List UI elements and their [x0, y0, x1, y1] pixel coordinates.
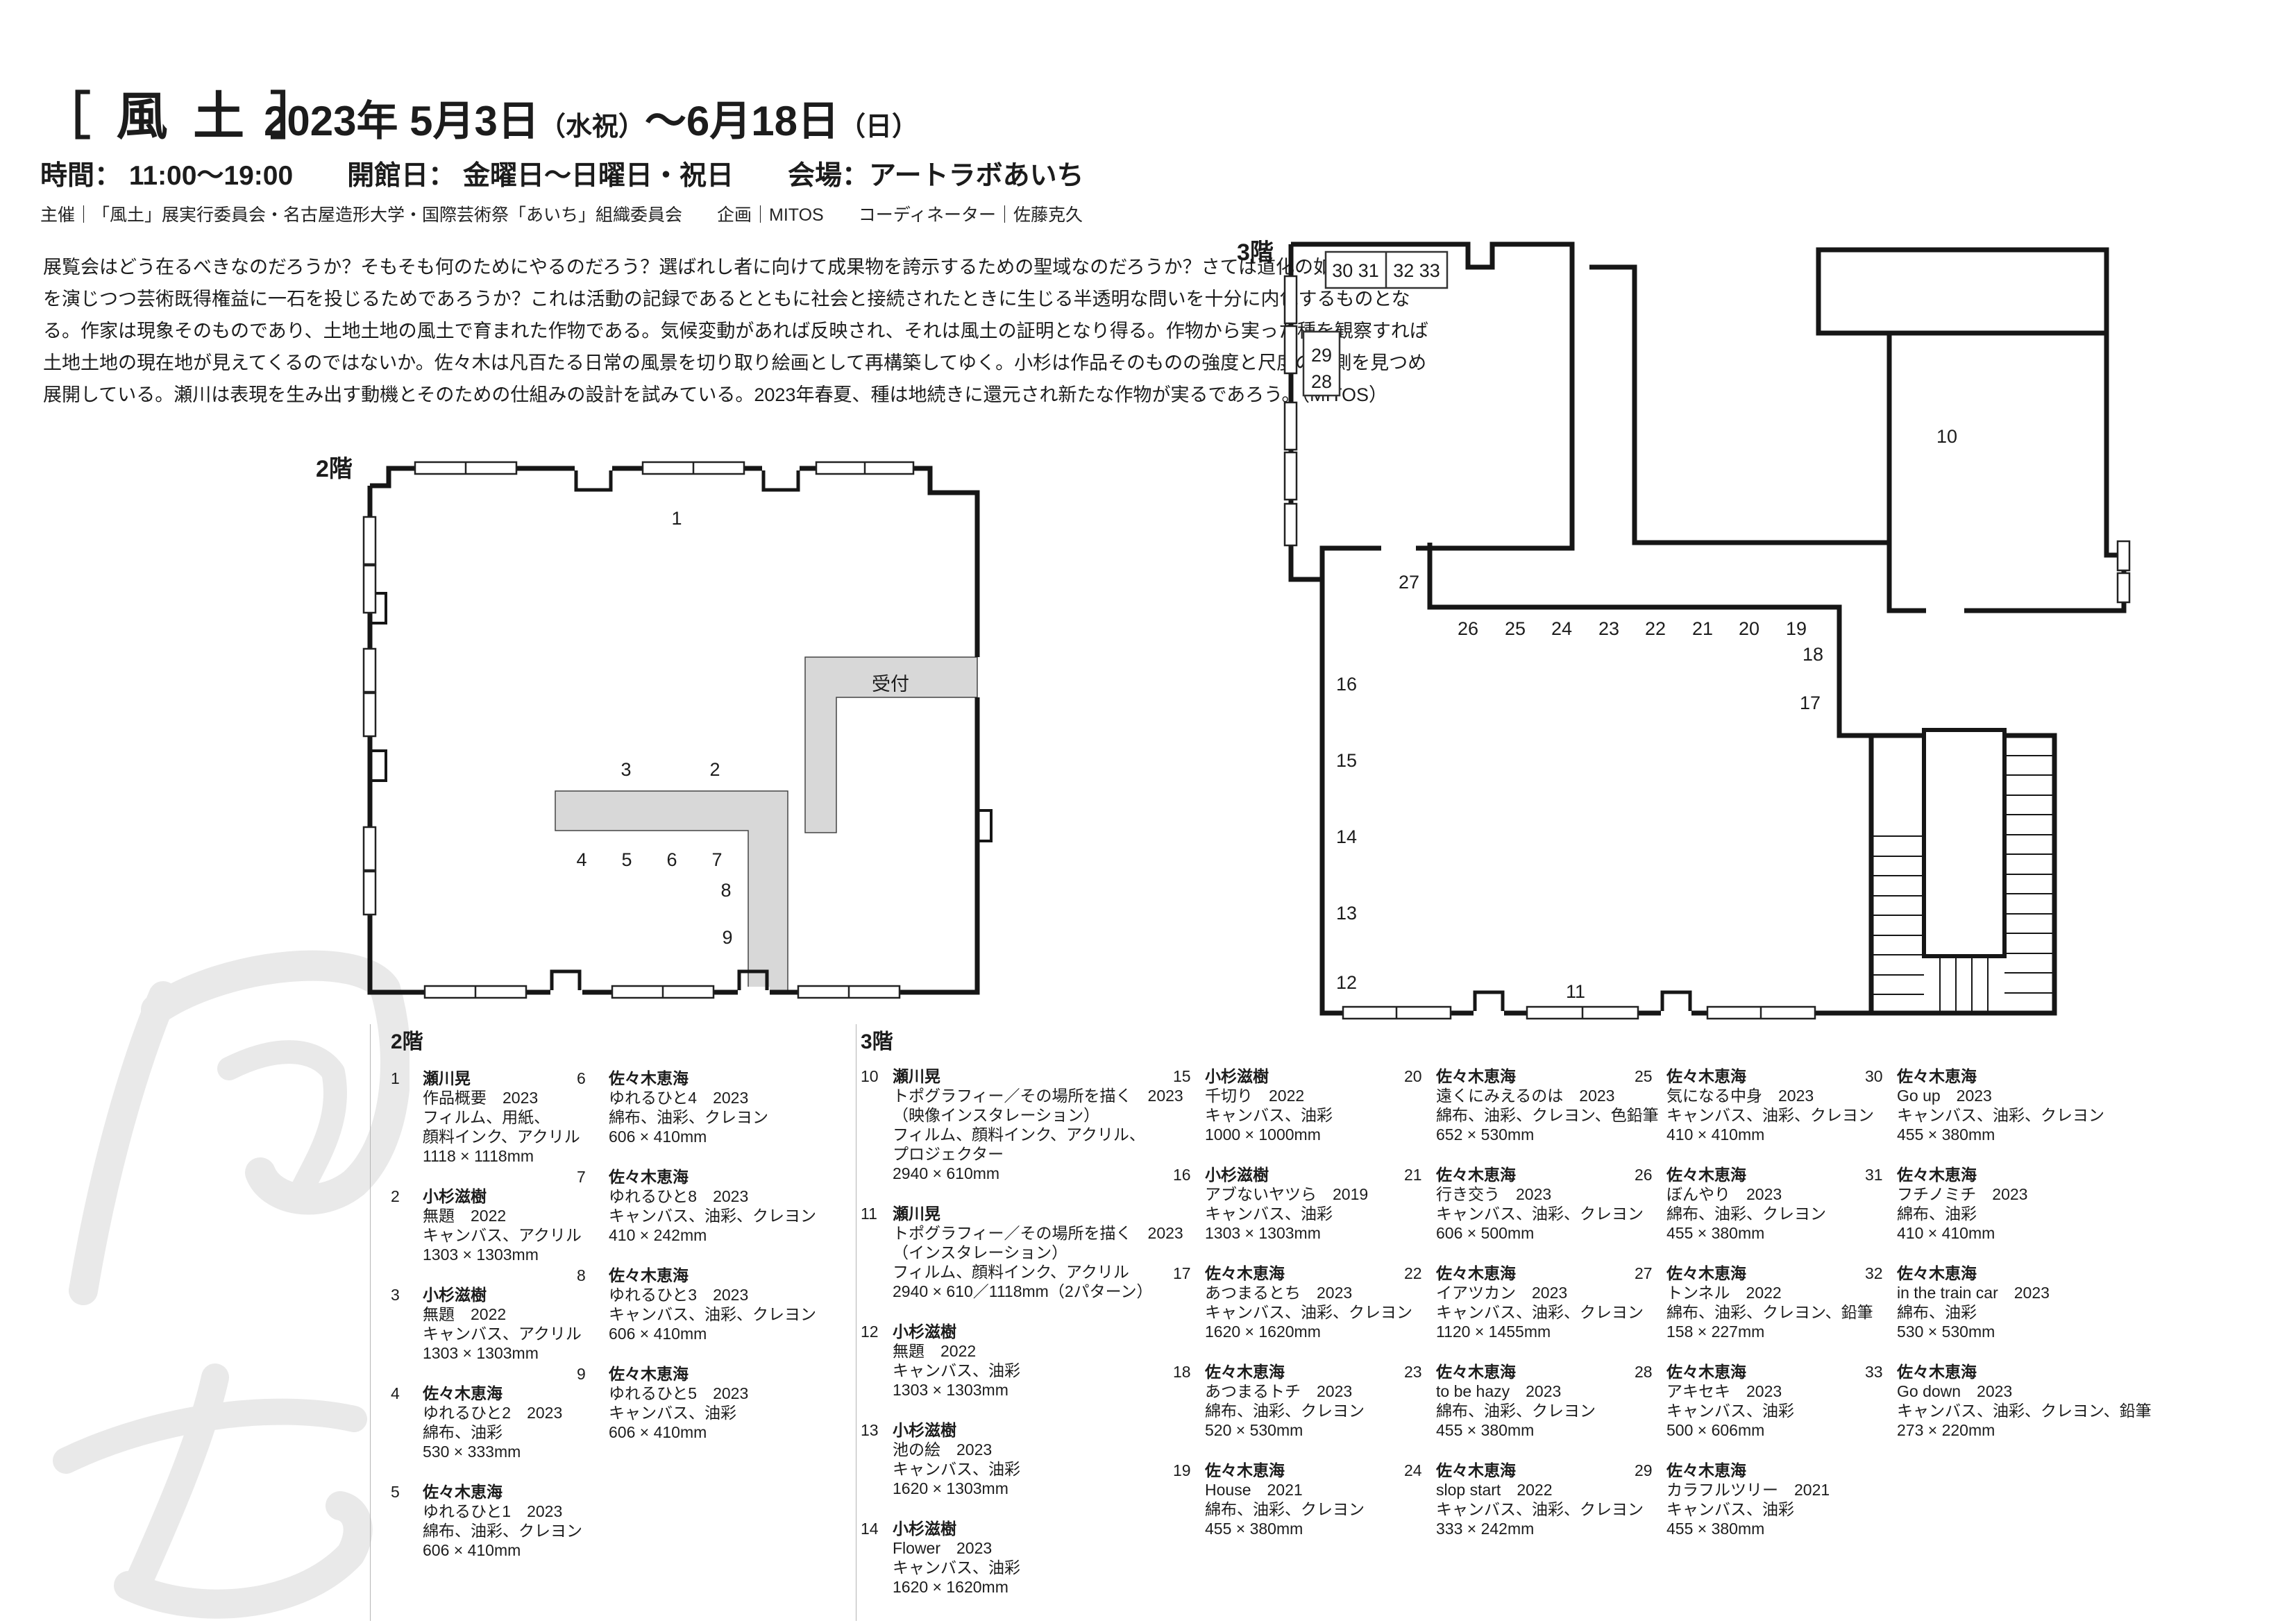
- item-artist: 瀬川晃: [893, 1067, 1183, 1086]
- list-item: 6佐々木恵海ゆれるひと4 2023綿布、油彩、クレヨン606 × 410mm: [577, 1069, 816, 1146]
- list-item: 26佐々木恵海ぼんやり 2023綿布、油彩、クレヨン455 × 380mm: [1635, 1165, 1874, 1243]
- item-number: 19: [1173, 1461, 1191, 1480]
- item-line: 606 × 410mm: [423, 1540, 582, 1560]
- list-item: 24佐々木恵海slop start 2022キャンバス、油彩、クレヨン333 ×…: [1404, 1461, 1659, 1538]
- item-line: 1620 × 1620mm: [893, 1577, 1183, 1597]
- hours-venue-line: 時間： 11:00～19:00 開館日： 金曜日～日曜日・祝日 会場：アートラボ…: [40, 154, 1084, 193]
- watermark-calligraphy: [21, 923, 410, 1623]
- item-artist: 小杉滋樹: [893, 1519, 1183, 1538]
- item-line: 綿布、油彩、クレヨン: [609, 1107, 816, 1127]
- date-start-note: （水祝）: [539, 105, 645, 143]
- item-artist: 佐々木恵海: [423, 1384, 582, 1403]
- list-item: 5佐々木恵海ゆれるひと1 2023綿布、油彩、クレヨン606 × 410mm: [391, 1482, 582, 1560]
- item-body: 佐々木恵海あつまるトチ 2023綿布、油彩、クレヨン520 × 530mm: [1205, 1362, 1412, 1440]
- stairs: [1871, 730, 2054, 1013]
- item-artist: 佐々木恵海: [1436, 1362, 1659, 1382]
- item-artist: 佐々木恵海: [1897, 1264, 2152, 1283]
- item-body: 瀬川晃トポグラフィー／その場所を描く 2023（インスタレーション）フィルム、顔…: [893, 1204, 1183, 1301]
- plan-number-11: 11: [1566, 981, 1585, 1002]
- item-line: ゆれるひと5 2023: [609, 1384, 816, 1403]
- item-number: 12: [861, 1322, 879, 1341]
- item-line: 333 × 242mm: [1436, 1519, 1659, 1538]
- item-artist: 佐々木恵海: [1666, 1362, 1874, 1382]
- list-item: 14小杉滋樹Flower 2023キャンバス、油彩1620 × 1620mm: [861, 1519, 1183, 1597]
- date-end-note: （日）: [839, 105, 918, 143]
- item-line: 遠くにみえるのは 2023: [1436, 1086, 1659, 1105]
- item-line: あつまるとち 2023: [1205, 1283, 1412, 1302]
- item-line: 1620 × 1620mm: [1205, 1322, 1412, 1341]
- item-body: 佐々木恵海カラフルツリー 2021キャンバス、油彩455 × 380mm: [1666, 1461, 1874, 1538]
- item-artist: 小杉滋樹: [893, 1420, 1183, 1440]
- artwork-numbers-2f: 132456789: [576, 508, 732, 948]
- item-number: 11: [861, 1204, 877, 1223]
- item-line: 1303 × 1303mm: [423, 1343, 582, 1363]
- item-artist: 佐々木恵海: [1897, 1067, 2152, 1086]
- item-line: キャンバス、油彩: [1205, 1105, 1412, 1125]
- item-line: キャンバス、油彩: [893, 1558, 1183, 1577]
- plan-number-19: 19: [1786, 618, 1807, 639]
- artwork-numbers-3f: 102726252423222120191817161514131211: [1336, 426, 1957, 1002]
- item-body: 佐々木恵海in the train car 2023綿布、油彩530 × 530…: [1897, 1264, 2152, 1341]
- item-line: Go down 2023: [1897, 1382, 2152, 1401]
- credit-line: 主催｜「風土」展実行委員会・名古屋造形大学・国際芸術祭「あいち」組織委員会 企画…: [40, 201, 1083, 226]
- list-item: 16小杉滋樹アブないヤツら 2019キャンバス、油彩1303 × 1303mm: [1173, 1165, 1412, 1243]
- box-label-30-31: 30 31: [1332, 260, 1379, 281]
- item-line: 1303 × 1303mm: [423, 1245, 582, 1264]
- list-item: 22佐々木恵海イアツカン 2023キャンバス、油彩、クレヨン1120 × 145…: [1404, 1264, 1659, 1341]
- plan-number-5: 5: [621, 849, 632, 870]
- item-line: フチノミチ 2023: [1897, 1184, 2152, 1204]
- list-item: 32佐々木恵海in the train car 2023綿布、油彩530 × 5…: [1865, 1264, 2152, 1341]
- plan-number-20: 20: [1739, 618, 1759, 639]
- item-line: 410 × 410mm: [1666, 1125, 1874, 1144]
- plan-number-12: 12: [1336, 972, 1357, 993]
- item-line: 606 × 410mm: [609, 1324, 816, 1343]
- item-line: アキセキ 2023: [1666, 1382, 1874, 1401]
- item-line: キャンバス、アクリル: [423, 1225, 582, 1245]
- item-number: 3: [391, 1285, 400, 1305]
- item-number: 18: [1173, 1362, 1191, 1382]
- item-artist: 佐々木恵海: [1436, 1067, 1659, 1086]
- item-number: 14: [861, 1519, 879, 1538]
- list-item: 29佐々木恵海カラフルツリー 2021キャンバス、油彩455 × 380mm: [1635, 1461, 1874, 1538]
- item-artist: 佐々木恵海: [1436, 1461, 1659, 1480]
- item-artist: 佐々木恵海: [423, 1482, 582, 1502]
- item-line: トンネル 2022: [1666, 1283, 1874, 1302]
- list-item: 2小杉滋樹無題 2022キャンバス、アクリル1303 × 1303mm: [391, 1187, 582, 1264]
- item-artist: 佐々木恵海: [1436, 1165, 1659, 1184]
- plan-number-6: 6: [666, 849, 677, 870]
- item-line: キャンバス、油彩: [1205, 1204, 1412, 1223]
- plan-number-23: 23: [1598, 618, 1619, 639]
- list-item: 10瀬川晃トポグラフィー／その場所を描く 2023（映像インスタレーション）フィ…: [861, 1067, 1183, 1183]
- item-line: （インスタレーション）: [893, 1243, 1183, 1262]
- item-line: 1620 × 1303mm: [893, 1479, 1183, 1498]
- item-line: 綿布、油彩、クレヨン: [1205, 1401, 1412, 1420]
- item-line: イアツカン 2023: [1436, 1283, 1659, 1302]
- item-line: キャンバス、油彩: [1666, 1401, 1874, 1420]
- item-artist: 佐々木恵海: [1205, 1264, 1412, 1283]
- item-number: 26: [1635, 1165, 1653, 1184]
- item-line: キャンバス、油彩、クレヨン: [1666, 1105, 1874, 1125]
- item-line: 652 × 530mm: [1436, 1125, 1659, 1144]
- item-body: 佐々木恵海トンネル 2022綿布、油彩、クレヨン、鉛筆158 × 227mm: [1666, 1264, 1874, 1341]
- item-line: 1120 × 1455mm: [1436, 1322, 1659, 1341]
- item-line: 455 × 380mm: [1666, 1519, 1874, 1538]
- item-line: カラフルツリー 2021: [1666, 1480, 1874, 1499]
- item-number: 23: [1404, 1362, 1422, 1382]
- item-body: 佐々木恵海遠くにみえるのは 2023綿布、油彩、クレヨン、色鉛筆652 × 53…: [1436, 1067, 1659, 1144]
- item-line: キャンバス、油彩、クレヨン、鉛筆: [1897, 1401, 2152, 1420]
- list-item: 11瀬川晃トポグラフィー／その場所を描く 2023（インスタレーション）フィルム…: [861, 1204, 1183, 1301]
- list-column-3f-3: 20佐々木恵海遠くにみえるのは 2023綿布、油彩、クレヨン、色鉛筆652 × …: [1404, 1067, 1659, 1559]
- list-item: 17佐々木恵海あつまるとち 2023キャンバス、油彩、クレヨン1620 × 16…: [1173, 1264, 1412, 1341]
- item-line: 綿布、油彩: [1897, 1302, 2152, 1322]
- item-line: 綿布、油彩、クレヨン: [1666, 1204, 1874, 1223]
- item-number: 5: [391, 1482, 400, 1502]
- item-body: 佐々木恵海ゆれるひと1 2023綿布、油彩、クレヨン606 × 410mm: [423, 1482, 582, 1560]
- list-column-3f-5: 30佐々木恵海Go up 2023キャンバス、油彩、クレヨン455 × 380m…: [1865, 1067, 2152, 1461]
- item-line: フィルム、用紙、: [423, 1107, 582, 1127]
- item-body: 佐々木恵海あつまるとち 2023キャンバス、油彩、クレヨン1620 × 1620…: [1205, 1264, 1412, 1341]
- list-column-3f-4: 25佐々木恵海気になる中身 2023キャンバス、油彩、クレヨン410 × 410…: [1635, 1067, 1874, 1559]
- item-number: 16: [1173, 1165, 1191, 1184]
- item-number: 21: [1404, 1165, 1422, 1184]
- list-item: 7佐々木恵海ゆれるひと8 2023キャンバス、油彩、クレヨン410 × 242m…: [577, 1167, 816, 1245]
- plan-number-18: 18: [1803, 644, 1823, 665]
- item-line: 顔料インク、アクリル: [423, 1127, 582, 1146]
- item-line: 千切り 2022: [1205, 1086, 1412, 1105]
- list-item: 27佐々木恵海トンネル 2022綿布、油彩、クレヨン、鉛筆158 × 227mm: [1635, 1264, 1874, 1341]
- item-number: 30: [1865, 1067, 1883, 1086]
- plan-number-22: 22: [1645, 618, 1666, 639]
- item-line: 410 × 410mm: [1897, 1223, 2152, 1243]
- box-label-28: 28: [1311, 371, 1332, 392]
- item-line: キャンバス、油彩、クレヨン: [1897, 1105, 2152, 1125]
- item-body: 小杉滋樹千切り 2022キャンバス、油彩1000 × 1000mm: [1205, 1067, 1412, 1144]
- item-line: 1303 × 1303mm: [1205, 1223, 1412, 1243]
- reception-label: 受付: [872, 674, 909, 695]
- item-artist: 小杉滋樹: [423, 1187, 582, 1206]
- item-line: フィルム、顔料インク、アクリル: [893, 1262, 1183, 1282]
- item-number: 10: [861, 1067, 879, 1086]
- item-body: 佐々木恵海フチノミチ 2023綿布、油彩410 × 410mm: [1897, 1165, 2152, 1243]
- item-artist: 佐々木恵海: [1436, 1264, 1659, 1283]
- item-number: 6: [577, 1069, 586, 1088]
- item-line: キャンバス、油彩: [1666, 1499, 1874, 1519]
- list-item: 31佐々木恵海フチノミチ 2023綿布、油彩410 × 410mm: [1865, 1165, 2152, 1243]
- item-body: 佐々木恵海ゆれるひと5 2023キャンバス、油彩606 × 410mm: [609, 1364, 816, 1442]
- item-line: Flower 2023: [893, 1538, 1183, 1558]
- item-number: 25: [1635, 1067, 1653, 1086]
- item-body: 佐々木恵海アキセキ 2023キャンバス、油彩500 × 606mm: [1666, 1362, 1874, 1440]
- item-line: 606 × 500mm: [1436, 1223, 1659, 1243]
- item-artist: 小杉滋樹: [1205, 1067, 1412, 1086]
- item-artist: 瀬川晃: [423, 1069, 582, 1088]
- list-item: 21佐々木恵海行き交う 2023キャンバス、油彩、クレヨン606 × 500mm: [1404, 1165, 1659, 1243]
- item-artist: 小杉滋樹: [423, 1285, 582, 1305]
- list-column-2f-2: 6佐々木恵海ゆれるひと4 2023綿布、油彩、クレヨン606 × 410mm7佐…: [577, 1069, 816, 1463]
- item-line: 2940 × 610／1118mm（2パターン）: [893, 1282, 1183, 1301]
- item-line: キャンバス、油彩: [893, 1361, 1183, 1380]
- item-line: 2940 × 610mm: [893, 1164, 1183, 1183]
- plan-number-26: 26: [1458, 618, 1478, 639]
- item-artist: 佐々木恵海: [609, 1266, 816, 1285]
- item-body: 小杉滋樹アブないヤツら 2019キャンバス、油彩1303 × 1303mm: [1205, 1165, 1412, 1243]
- item-body: 小杉滋樹無題 2022キャンバス、アクリル1303 × 1303mm: [423, 1187, 582, 1264]
- item-body: 小杉滋樹Flower 2023キャンバス、油彩1620 × 1620mm: [893, 1519, 1183, 1597]
- item-body: 佐々木恵海Go up 2023キャンバス、油彩、クレヨン455 × 380mm: [1897, 1067, 2152, 1144]
- item-line: トポグラフィー／その場所を描く 2023: [893, 1086, 1183, 1105]
- item-artist: 小杉滋樹: [1205, 1165, 1412, 1184]
- floorplan-2f: 受付 132456789: [298, 444, 999, 1027]
- list-column-2f-1: 1瀬川晃作品概要 2023フィルム、用紙、顔料インク、アクリル1118 × 11…: [391, 1069, 582, 1581]
- plan-number-16: 16: [1336, 674, 1357, 695]
- item-body: 小杉滋樹池の絵 2023キャンバス、油彩1620 × 1303mm: [893, 1420, 1183, 1498]
- item-line: 455 × 380mm: [1205, 1519, 1412, 1538]
- item-body: 佐々木恵海ゆれるひと4 2023綿布、油彩、クレヨン606 × 410mm: [609, 1069, 816, 1146]
- plan-number-17: 17: [1800, 692, 1821, 713]
- list-item: 30佐々木恵海Go up 2023キャンバス、油彩、クレヨン455 × 380m…: [1865, 1067, 2152, 1144]
- item-line: 綿布、油彩、クレヨン、鉛筆: [1666, 1302, 1874, 1322]
- box-label-32-33: 32 33: [1393, 260, 1440, 281]
- item-artist: 佐々木恵海: [1666, 1461, 1874, 1480]
- item-number: 27: [1635, 1264, 1653, 1283]
- item-line: in the train car 2023: [1897, 1283, 2152, 1302]
- item-line: 無題 2022: [423, 1206, 582, 1225]
- item-body: 佐々木恵海イアツカン 2023キャンバス、油彩、クレヨン1120 × 1455m…: [1436, 1264, 1659, 1341]
- list-heading-2f: 2階: [391, 1024, 423, 1055]
- item-line: 綿布、油彩、クレヨン: [1436, 1401, 1659, 1420]
- item-body: 佐々木恵海slop start 2022キャンバス、油彩、クレヨン333 × 2…: [1436, 1461, 1659, 1538]
- plan-number-7: 7: [711, 849, 722, 870]
- item-line: 455 × 380mm: [1897, 1125, 2152, 1144]
- plan-number-21: 21: [1692, 618, 1713, 639]
- date-start: 2023年 5月3日: [264, 87, 539, 148]
- list-item: 8佐々木恵海ゆれるひと3 2023キャンバス、油彩、クレヨン606 × 410m…: [577, 1266, 816, 1343]
- item-body: 佐々木恵海House 2021綿布、油彩、クレヨン455 × 380mm: [1205, 1461, 1412, 1538]
- item-line: House 2021: [1205, 1480, 1412, 1499]
- item-line: キャンバス、油彩、クレヨン: [1436, 1499, 1659, 1519]
- item-line: 606 × 410mm: [609, 1422, 816, 1442]
- list-item: 12小杉滋樹無題 2022キャンバス、油彩1303 × 1303mm: [861, 1322, 1183, 1400]
- item-number: 20: [1404, 1067, 1422, 1086]
- plan-number-24: 24: [1551, 618, 1572, 639]
- list-item: 20佐々木恵海遠くにみえるのは 2023綿布、油彩、クレヨン、色鉛筆652 × …: [1404, 1067, 1659, 1144]
- item-number: 32: [1865, 1264, 1883, 1283]
- item-line: 1118 × 1118mm: [423, 1146, 582, 1166]
- plan-number-8: 8: [720, 880, 731, 901]
- plan-number-2: 2: [709, 759, 720, 780]
- item-line: 1000 × 1000mm: [1205, 1125, 1412, 1144]
- plan-number-3: 3: [621, 759, 631, 780]
- list-item: 15小杉滋樹千切り 2022キャンバス、油彩1000 × 1000mm: [1173, 1067, 1412, 1144]
- item-artist: 佐々木恵海: [1666, 1165, 1874, 1184]
- date-tilde: ～: [645, 87, 686, 148]
- list-divider-left: [370, 1024, 371, 1621]
- item-number: 13: [861, 1420, 879, 1440]
- item-body: 佐々木恵海ゆれるひと3 2023キャンバス、油彩、クレヨン606 × 410mm: [609, 1266, 816, 1343]
- item-line: 606 × 410mm: [609, 1127, 816, 1146]
- item-line: 綿布、油彩、クレヨン、色鉛筆: [1436, 1105, 1659, 1125]
- item-artist: 佐々木恵海: [1666, 1264, 1874, 1283]
- plan-number-13: 13: [1336, 903, 1357, 924]
- item-number: 22: [1404, 1264, 1422, 1283]
- item-line: 1303 × 1303mm: [893, 1380, 1183, 1400]
- item-line: キャンバス、アクリル: [423, 1324, 582, 1343]
- item-line: 273 × 220mm: [1897, 1420, 2152, 1440]
- plan-number-10: 10: [1936, 426, 1957, 447]
- item-line: 158 × 227mm: [1666, 1322, 1874, 1341]
- item-artist: 佐々木恵海: [1897, 1165, 2152, 1184]
- item-line: 気になる中身 2023: [1666, 1086, 1874, 1105]
- box-label-29: 29: [1311, 345, 1332, 366]
- item-body: 小杉滋樹無題 2022キャンバス、油彩1303 × 1303mm: [893, 1322, 1183, 1400]
- list-item: 28佐々木恵海アキセキ 2023キャンバス、油彩500 × 606mm: [1635, 1362, 1874, 1440]
- item-body: 小杉滋樹無題 2022キャンバス、アクリル1303 × 1303mm: [423, 1285, 582, 1363]
- item-line: 綿布、油彩: [1897, 1204, 2152, 1223]
- item-number: 29: [1635, 1461, 1653, 1480]
- item-body: 佐々木恵海行き交う 2023キャンバス、油彩、クレヨン606 × 500mm: [1436, 1165, 1659, 1243]
- plan-number-4: 4: [576, 849, 586, 870]
- item-line: 500 × 606mm: [1666, 1420, 1874, 1440]
- item-line: ゆれるひと4 2023: [609, 1088, 816, 1107]
- item-artist: 佐々木恵海: [1666, 1067, 1874, 1086]
- item-line: ゆれるひと1 2023: [423, 1502, 582, 1521]
- item-number: 7: [577, 1167, 586, 1187]
- item-body: 瀬川晃作品概要 2023フィルム、用紙、顔料インク、アクリル1118 × 111…: [423, 1069, 582, 1166]
- list-column-3f-1: 10瀬川晃トポグラフィー／その場所を描く 2023（映像インスタレーション）フィ…: [861, 1067, 1183, 1617]
- item-artist: 佐々木恵海: [609, 1167, 816, 1187]
- item-line: 作品概要 2023: [423, 1088, 582, 1107]
- list-item: 9佐々木恵海ゆれるひと5 2023キャンバス、油彩606 × 410mm: [577, 1364, 816, 1442]
- item-line: 455 × 380mm: [1666, 1223, 1874, 1243]
- item-number: 8: [577, 1266, 586, 1285]
- list-item: 3小杉滋樹無題 2022キャンバス、アクリル1303 × 1303mm: [391, 1285, 582, 1363]
- item-line: キャンバス、油彩、クレヨン: [609, 1206, 816, 1225]
- item-line: 530 × 530mm: [1897, 1322, 2152, 1341]
- exhibition-dates: 2023年 5月3日 （水祝） ～ 6月18日 （日）: [264, 87, 918, 148]
- list-item: 23佐々木恵海to be hazy 2023綿布、油彩、クレヨン455 × 38…: [1404, 1362, 1659, 1440]
- item-line: ゆれるひと8 2023: [609, 1187, 816, 1206]
- item-number: 31: [1865, 1165, 1883, 1184]
- item-artist: 佐々木恵海: [609, 1069, 816, 1088]
- item-artist: 小杉滋樹: [893, 1322, 1183, 1341]
- item-line: あつまるトチ 2023: [1205, 1382, 1412, 1401]
- list-item: 18佐々木恵海あつまるトチ 2023綿布、油彩、クレヨン520 × 530mm: [1173, 1362, 1412, 1440]
- exhibition-flyer-page: { "header": { "title": "［ 風 土 ］", "date_…: [0, 0, 2296, 1623]
- list-item: 25佐々木恵海気になる中身 2023キャンバス、油彩、クレヨン410 × 410…: [1635, 1067, 1874, 1144]
- date-end: 6月18日: [686, 87, 839, 148]
- item-line: キャンバス、油彩、クレヨン: [1436, 1302, 1659, 1322]
- item-line: 530 × 333mm: [423, 1442, 582, 1461]
- item-line: キャンバス、油彩: [893, 1459, 1183, 1479]
- item-line: プロジェクター: [893, 1144, 1183, 1164]
- list-heading-3f: 3階: [861, 1024, 893, 1055]
- item-artist: 佐々木恵海: [1897, 1362, 2152, 1382]
- plan-number-25: 25: [1505, 618, 1526, 639]
- item-artist: 佐々木恵海: [609, 1364, 816, 1384]
- item-line: ぼんやり 2023: [1666, 1184, 1874, 1204]
- item-line: トポグラフィー／その場所を描く 2023: [893, 1223, 1183, 1243]
- item-line: 410 × 242mm: [609, 1225, 816, 1245]
- item-artist: 佐々木恵海: [1205, 1362, 1412, 1382]
- item-line: 455 × 380mm: [1436, 1420, 1659, 1440]
- item-line: 綿布、油彩: [423, 1422, 582, 1442]
- item-line: slop start 2022: [1436, 1480, 1659, 1499]
- item-number: 24: [1404, 1461, 1422, 1480]
- item-line: 無題 2022: [893, 1341, 1183, 1361]
- item-body: 佐々木恵海to be hazy 2023綿布、油彩、クレヨン455 × 380m…: [1436, 1362, 1659, 1440]
- walls-2f: [370, 462, 991, 999]
- item-body: 瀬川晃トポグラフィー／その場所を描く 2023（映像インスタレーション）フィルム…: [893, 1067, 1183, 1183]
- item-artist: 佐々木恵海: [1205, 1461, 1412, 1480]
- item-artist: 瀬川晃: [893, 1204, 1183, 1223]
- item-line: （映像インスタレーション）: [893, 1105, 1183, 1125]
- plan-number-15: 15: [1336, 750, 1357, 771]
- item-line: ゆれるひと2 2023: [423, 1403, 582, 1422]
- item-body: 佐々木恵海ぼんやり 2023綿布、油彩、クレヨン455 × 380mm: [1666, 1165, 1874, 1243]
- item-number: 4: [391, 1384, 400, 1403]
- item-number: 1: [391, 1069, 400, 1088]
- list-item: 19佐々木恵海House 2021綿布、油彩、クレヨン455 × 380mm: [1173, 1461, 1412, 1538]
- item-line: フィルム、顔料インク、アクリル、: [893, 1125, 1183, 1144]
- item-number: 28: [1635, 1362, 1653, 1382]
- item-number: 33: [1865, 1362, 1883, 1382]
- item-line: 綿布、油彩、クレヨン: [423, 1521, 582, 1540]
- list-item: 13小杉滋樹池の絵 2023キャンバス、油彩1620 × 1303mm: [861, 1420, 1183, 1498]
- floorplan-3f: 30 31 32 33 29 28 1027262524232221201918…: [1215, 229, 2152, 1030]
- item-line: Go up 2023: [1897, 1086, 2152, 1105]
- list-item: 33佐々木恵海Go down 2023キャンバス、油彩、クレヨン、鉛筆273 ×…: [1865, 1362, 2152, 1440]
- item-number: 9: [577, 1364, 586, 1384]
- item-line: キャンバス、油彩、クレヨン: [1205, 1302, 1412, 1322]
- item-line: キャンバス、油彩、クレヨン: [609, 1305, 816, 1324]
- item-body: 佐々木恵海気になる中身 2023キャンバス、油彩、クレヨン410 × 410mm: [1666, 1067, 1874, 1144]
- item-number: 17: [1173, 1264, 1191, 1283]
- plan-number-1: 1: [671, 508, 682, 529]
- item-line: 池の絵 2023: [893, 1440, 1183, 1459]
- plan-number-14: 14: [1336, 826, 1357, 847]
- item-line: キャンバス、油彩: [609, 1403, 816, 1422]
- item-line: 520 × 530mm: [1205, 1420, 1412, 1440]
- item-line: キャンバス、油彩、クレヨン: [1436, 1204, 1659, 1223]
- item-line: 無題 2022: [423, 1305, 582, 1324]
- list-column-3f-2: 15小杉滋樹千切り 2022キャンバス、油彩1000 × 1000mm16小杉滋…: [1173, 1067, 1412, 1559]
- list-item: 4佐々木恵海ゆれるひと2 2023綿布、油彩530 × 333mm: [391, 1384, 582, 1461]
- item-line: 綿布、油彩、クレヨン: [1205, 1499, 1412, 1519]
- item-number: 15: [1173, 1067, 1191, 1086]
- item-line: 行き交う 2023: [1436, 1184, 1659, 1204]
- item-body: 佐々木恵海Go down 2023キャンバス、油彩、クレヨン、鉛筆273 × 2…: [1897, 1362, 2152, 1440]
- item-line: ゆれるひと3 2023: [609, 1285, 816, 1305]
- item-body: 佐々木恵海ゆれるひと2 2023綿布、油彩530 × 333mm: [423, 1384, 582, 1461]
- item-line: アブないヤツら 2019: [1205, 1184, 1412, 1204]
- list-item: 1瀬川晃作品概要 2023フィルム、用紙、顔料インク、アクリル1118 × 11…: [391, 1069, 582, 1166]
- plan-number-9: 9: [722, 927, 732, 948]
- gray-partition-2f: [555, 791, 788, 991]
- item-body: 佐々木恵海ゆれるひと8 2023キャンバス、油彩、クレヨン410 × 242mm: [609, 1167, 816, 1245]
- item-number: 2: [391, 1187, 400, 1206]
- plan-number-27: 27: [1399, 572, 1419, 593]
- item-line: to be hazy 2023: [1436, 1382, 1659, 1401]
- list-divider-right: [856, 1024, 856, 1621]
